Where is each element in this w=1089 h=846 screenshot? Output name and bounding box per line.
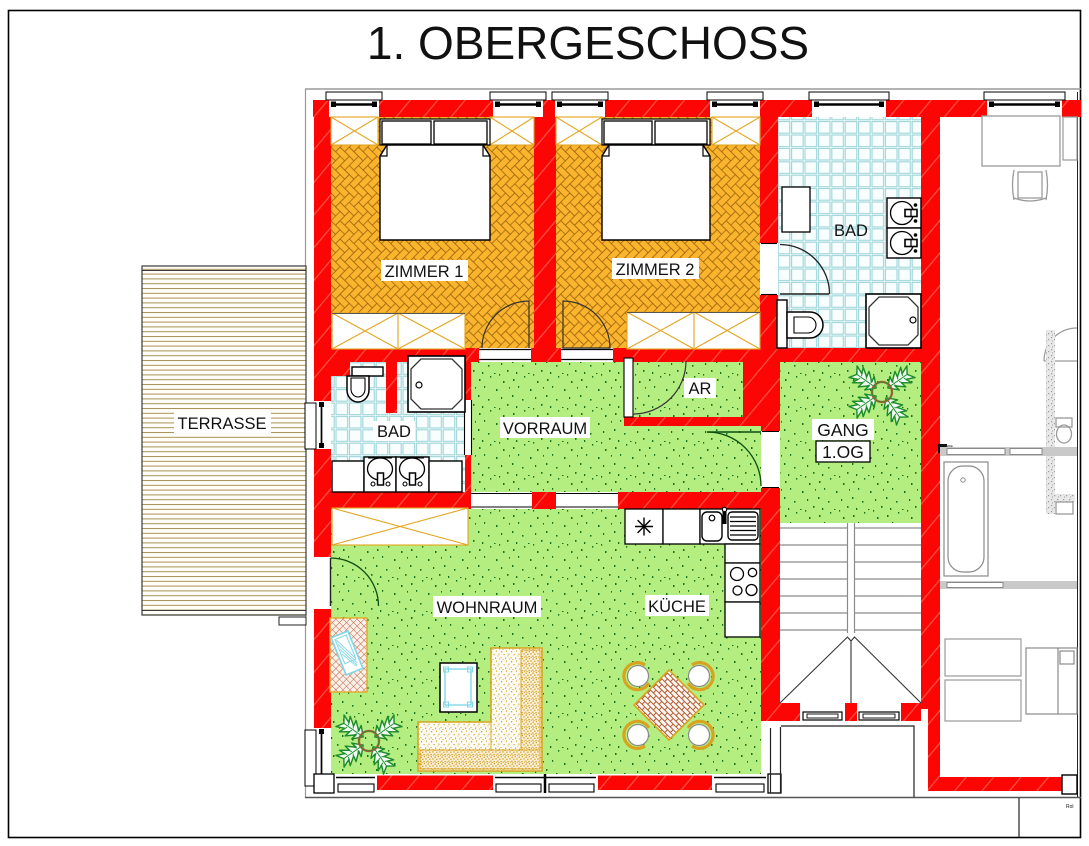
svg-text:ZIMMER 2: ZIMMER 2 — [616, 261, 695, 279]
svg-text:VORRAUM: VORRAUM — [503, 420, 587, 438]
svg-text:TERRASSE: TERRASSE — [178, 415, 267, 433]
svg-text:Rol: Rol — [1066, 804, 1074, 810]
svg-text:AR: AR — [689, 380, 712, 398]
svg-text:KÜCHE: KÜCHE — [648, 598, 706, 616]
svg-text:ZIMMER 1: ZIMMER 1 — [385, 263, 464, 281]
svg-text:WOHNRAUM: WOHNRAUM — [437, 599, 538, 617]
svg-text:1.OG: 1.OG — [822, 442, 864, 462]
svg-text:GANG: GANG — [817, 420, 869, 440]
svg-text:BAD: BAD — [834, 222, 868, 240]
svg-text:BAD: BAD — [377, 423, 411, 441]
svg-text:1. OBERGESCHOSS: 1. OBERGESCHOSS — [367, 17, 809, 69]
